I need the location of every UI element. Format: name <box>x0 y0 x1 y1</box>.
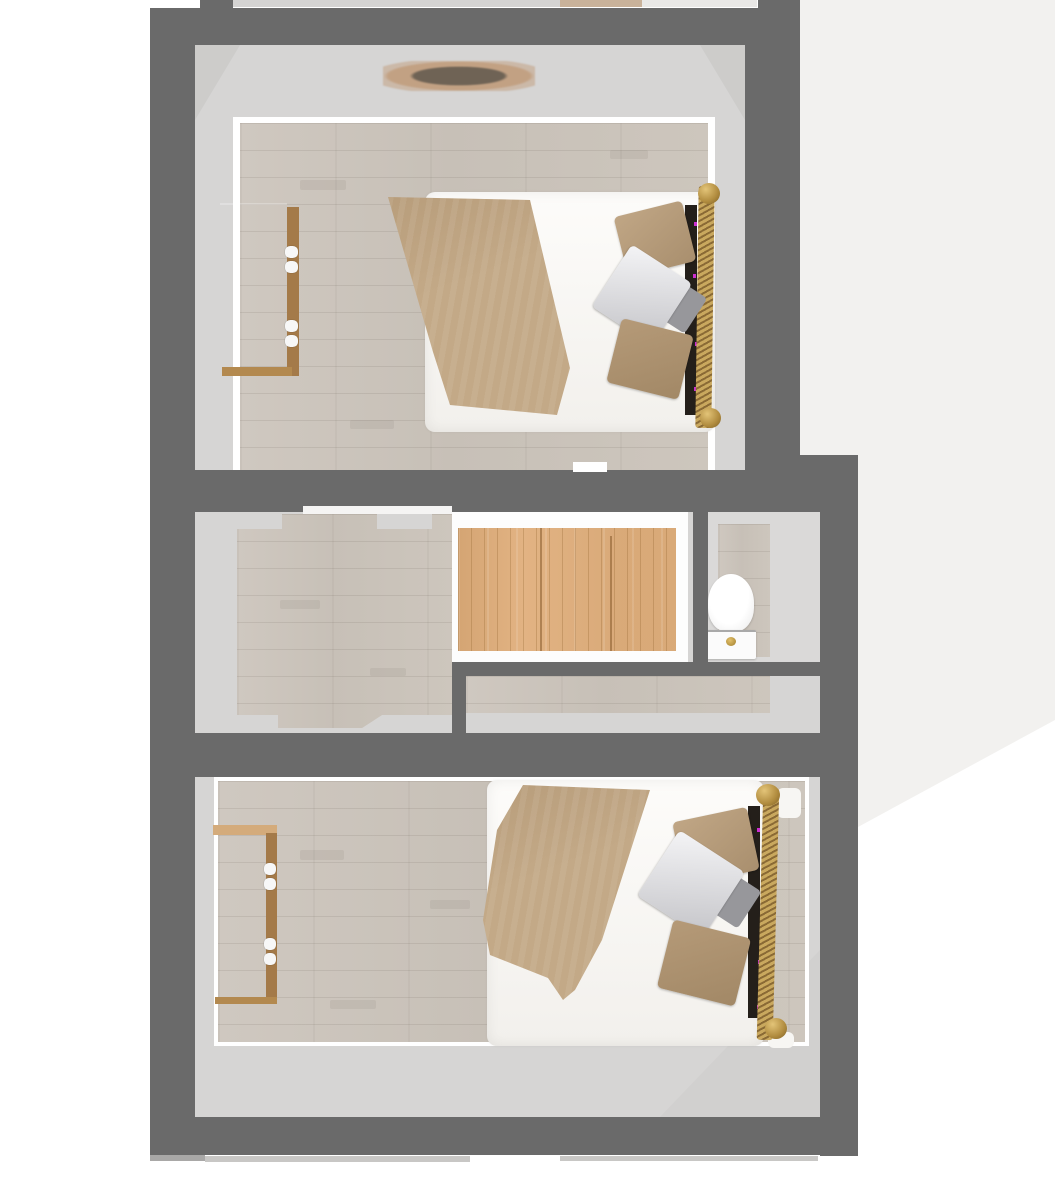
wall-stair-stub-vertical <box>452 662 466 733</box>
bed-finial-bottom <box>700 408 721 428</box>
bed-finial-top <box>698 183 720 204</box>
hallway-top-sliver <box>303 506 452 514</box>
wall-right-outer <box>820 455 858 1156</box>
floor-patch <box>330 1000 376 1009</box>
wardrobe-side-panel <box>266 833 277 1001</box>
rail-accent <box>757 828 760 832</box>
wardrobe-handle <box>264 953 276 965</box>
wall-shadow <box>560 1156 818 1161</box>
wall-shadow <box>205 1156 470 1162</box>
wardrobe-bottom-edge <box>215 997 277 1004</box>
wall-stair-stub-horizontal <box>452 662 820 676</box>
wardrobe-handle <box>285 246 298 258</box>
stair-runner[interactable] <box>458 528 676 651</box>
floor-patch <box>610 150 648 159</box>
floor-patch <box>300 850 344 860</box>
runner-seam <box>610 536 612 651</box>
wardrobe-bottom-edge <box>222 367 292 376</box>
wardrobe-handle <box>264 938 276 950</box>
wardrobe-handle <box>285 335 298 347</box>
toilet-bowl <box>708 574 754 632</box>
floor-patch <box>300 180 346 190</box>
floor-patch <box>370 668 406 676</box>
wardrobe-handle <box>285 320 298 332</box>
wall-band-bedroom-hallway <box>150 470 858 512</box>
wall-left-outer <box>150 8 195 1156</box>
wall-top-right-corner <box>758 0 800 45</box>
wall-bottom-outer <box>150 1117 820 1155</box>
hallway-floor <box>237 514 452 728</box>
floor-patch <box>280 600 320 609</box>
wardrobe-handle <box>285 261 298 273</box>
bed-top-bedroom[interactable] <box>388 182 728 434</box>
wall-top-bedroom-right <box>745 45 800 470</box>
sheet-corner-top <box>777 788 801 818</box>
room-above-floor-sliver <box>233 0 560 7</box>
wardrobe-top-bedroom[interactable] <box>220 203 300 385</box>
runner-seam <box>540 528 542 651</box>
wardrobe-bottom-bedroom[interactable] <box>213 825 279 1005</box>
wall-wc-divider <box>693 512 708 662</box>
wall-top-bedroom-top <box>150 8 758 45</box>
bed-bottom-bedroom[interactable] <box>483 780 803 1048</box>
rail-accent <box>694 222 697 226</box>
wardrobe-handle <box>264 878 276 890</box>
flush-button <box>726 637 736 646</box>
wardrobe-top <box>220 203 287 367</box>
floor-patch <box>430 900 470 909</box>
room-above-wood-sliver <box>560 0 642 7</box>
rail-accent <box>693 274 696 278</box>
wardrobe-top <box>213 833 266 997</box>
toilet[interactable] <box>705 572 759 658</box>
ceiling-light[interactable] <box>383 61 535 91</box>
wardrobe-side-panel <box>287 207 299 376</box>
wardrobe-handle <box>264 863 276 875</box>
room-above-light-sliver <box>642 0 757 7</box>
bed-finial-bottom <box>765 1018 787 1039</box>
wall-shadow <box>150 1155 205 1161</box>
wall-band-hallway-bedroom <box>150 733 858 777</box>
floor-plan-canvas <box>0 0 1055 1200</box>
corridor-floor <box>466 676 770 713</box>
door-opening-top-bedroom <box>573 462 607 472</box>
bed-finial-top <box>756 784 780 806</box>
